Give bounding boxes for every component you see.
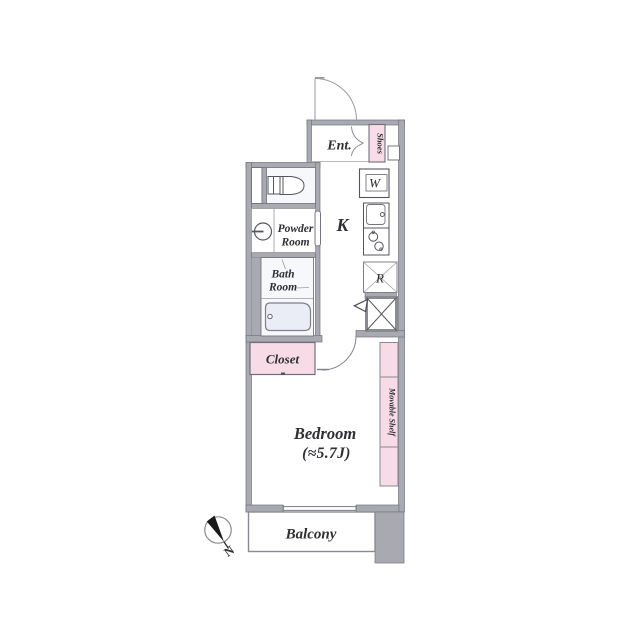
svg-text:Ent.: Ent. — [326, 139, 352, 154]
svg-text:Powder: Powder — [278, 223, 314, 235]
svg-text:Shoes: Shoes — [376, 133, 386, 154]
svg-text:N: N — [221, 543, 237, 560]
svg-text:Closet: Closet — [266, 352, 300, 367]
svg-text:Movable Shelf: Movable Shelf — [387, 387, 396, 437]
svg-text:(≈5.7J): (≈5.7J) — [302, 445, 351, 462]
svg-text:W: W — [369, 176, 381, 191]
svg-text:Room: Room — [268, 282, 297, 294]
svg-text:Bath: Bath — [270, 269, 294, 281]
svg-text:Room: Room — [280, 237, 309, 249]
svg-text:K: K — [335, 215, 350, 235]
svg-text:R: R — [375, 271, 384, 286]
svg-text:Bedroom: Bedroom — [293, 424, 357, 443]
svg-text:Balcony: Balcony — [285, 527, 337, 543]
